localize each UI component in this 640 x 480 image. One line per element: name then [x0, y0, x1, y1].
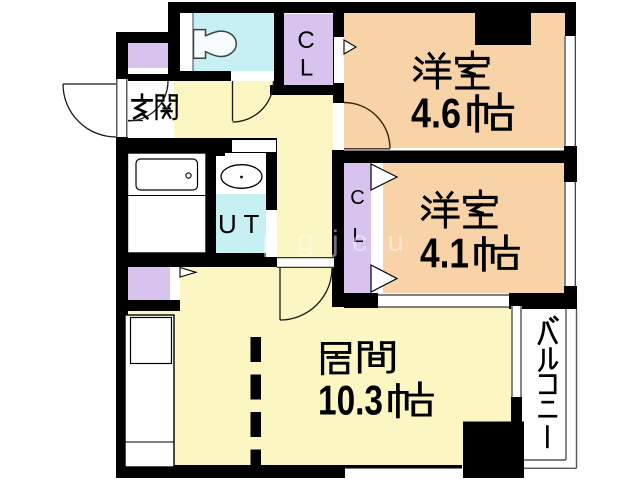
svg-text:U T: U T [218, 209, 260, 239]
svg-text:4.1: 4.1 [420, 230, 469, 277]
svg-text:C: C [297, 27, 314, 54]
svg-text:4.6: 4.6 [411, 90, 461, 137]
svg-text:p g j: p g j [262, 225, 344, 258]
svg-text:L: L [300, 55, 313, 82]
svg-text:C: C [350, 187, 364, 209]
svg-text:c u: c u [352, 225, 410, 258]
svg-text:10.3: 10.3 [318, 377, 383, 424]
